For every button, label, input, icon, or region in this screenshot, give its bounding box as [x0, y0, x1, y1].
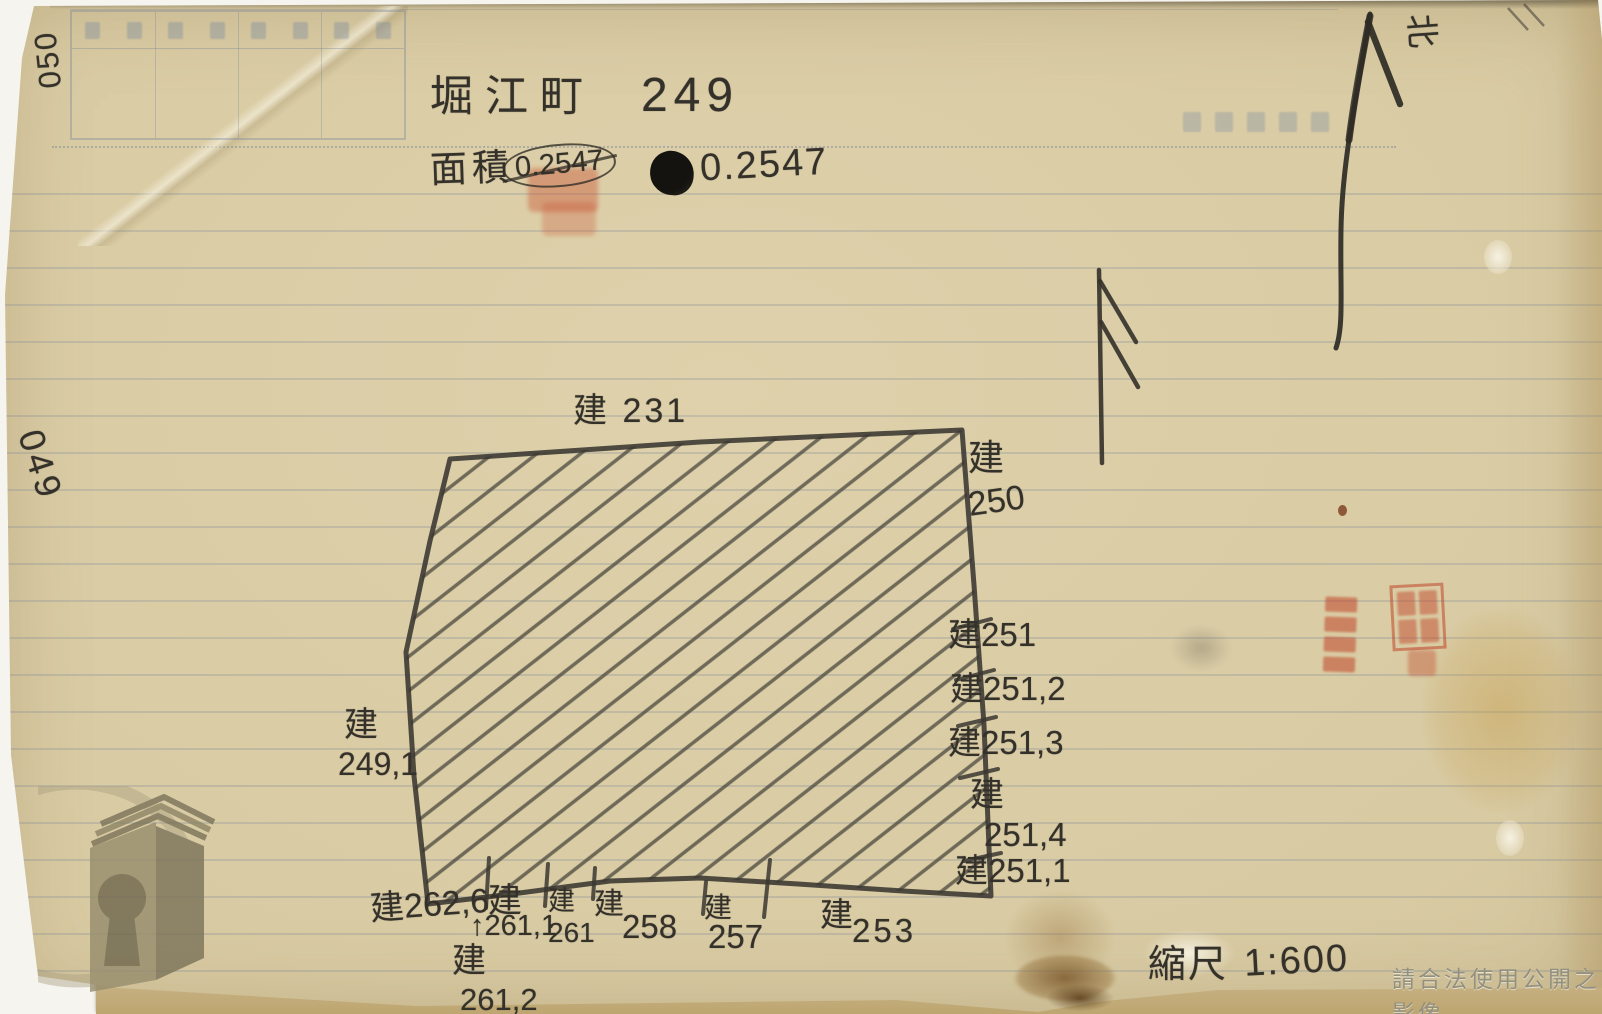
stray-pencil-marks: [1508, 4, 1544, 30]
archives-logo: [38, 786, 238, 992]
area-value-crossed-out: 0.2547: [503, 144, 616, 187]
parcel-label-251-3: 建251,3: [948, 726, 1064, 759]
parcel-label-249-1: 建 249,1: [344, 708, 418, 780]
survey-arrow: [1099, 270, 1138, 463]
red-seal-mark: [1408, 650, 1436, 676]
north-label: 北: [1403, 13, 1439, 49]
parcel-label-261-1-digits: 261,1: [485, 910, 558, 942]
parcel-label-261-2-digits: 261,2: [460, 984, 538, 1014]
north-arrow: [1336, 14, 1400, 348]
parcel-label-250-char: 建: [968, 440, 1025, 476]
parcel-label-261-digits: 261: [548, 919, 595, 947]
scale-label: 縮尺: [1148, 946, 1228, 984]
parcel-label-258-char: 建: [594, 890, 624, 920]
parcel-label-249-1-char: 建: [344, 708, 418, 742]
area-label: 面積: [429, 149, 514, 189]
parcel-label-261-1-num: ↑261,1: [470, 912, 557, 941]
red-seal-vertical: [1317, 596, 1364, 679]
parcel-label-251-1: 建251,1: [955, 854, 1071, 887]
doc-title-number: 249: [641, 69, 739, 122]
red-seal-square: [1389, 583, 1446, 652]
parcel-label-257-num: 257: [708, 920, 763, 953]
parcel-label-253-char: 建: [820, 896, 853, 933]
pointer-arrow: ↑: [470, 910, 485, 942]
parcel-label-253-num: 253: [852, 914, 916, 947]
parcel-label-258-num: 258: [622, 910, 677, 943]
parcel-label-251: 建251: [948, 618, 1036, 651]
parcel-label-249-1-num: 249,1: [338, 748, 418, 780]
parcel-label-253: 建: [820, 898, 853, 931]
parcel-label-250-num: 250: [966, 480, 1027, 522]
parcel-label-258: 建: [594, 890, 624, 920]
parcel-label-261-char: 建: [548, 888, 595, 915]
watermark: 請合法使用公開之影像: [1392, 960, 1602, 1014]
scanned-document: 堀江町 249 面積 0.2547 0.2547 北 建 231 建 250 建…: [0, 0, 1602, 1014]
parcel-label-231: 建 231: [573, 394, 688, 428]
parcel-label-251-4-num: 251,4: [984, 818, 1067, 851]
parcel-label-261: 建 261: [548, 888, 595, 947]
parcel-label-251-2: 建251,2: [950, 672, 1066, 705]
parcel-label-261-2: 建 261,2: [452, 944, 538, 1014]
parcel-label-261-2-char: 建: [452, 944, 538, 978]
parcel-label-250: 建 250: [968, 440, 1025, 518]
parcel-label-251-4-char: 建: [970, 778, 1067, 812]
parcel-polygon: [406, 430, 991, 904]
area-value: 0.2547: [699, 143, 829, 188]
doc-title: 堀江町 249: [430, 72, 739, 120]
doc-title-town: 堀江町: [430, 73, 595, 121]
crossed-value-oval: 0.2547: [501, 139, 617, 192]
parcel-label-251-4: 建 251,4: [970, 778, 1067, 851]
scale-value: 1:600: [1243, 939, 1350, 982]
page-number-top: 050: [29, 29, 66, 90]
